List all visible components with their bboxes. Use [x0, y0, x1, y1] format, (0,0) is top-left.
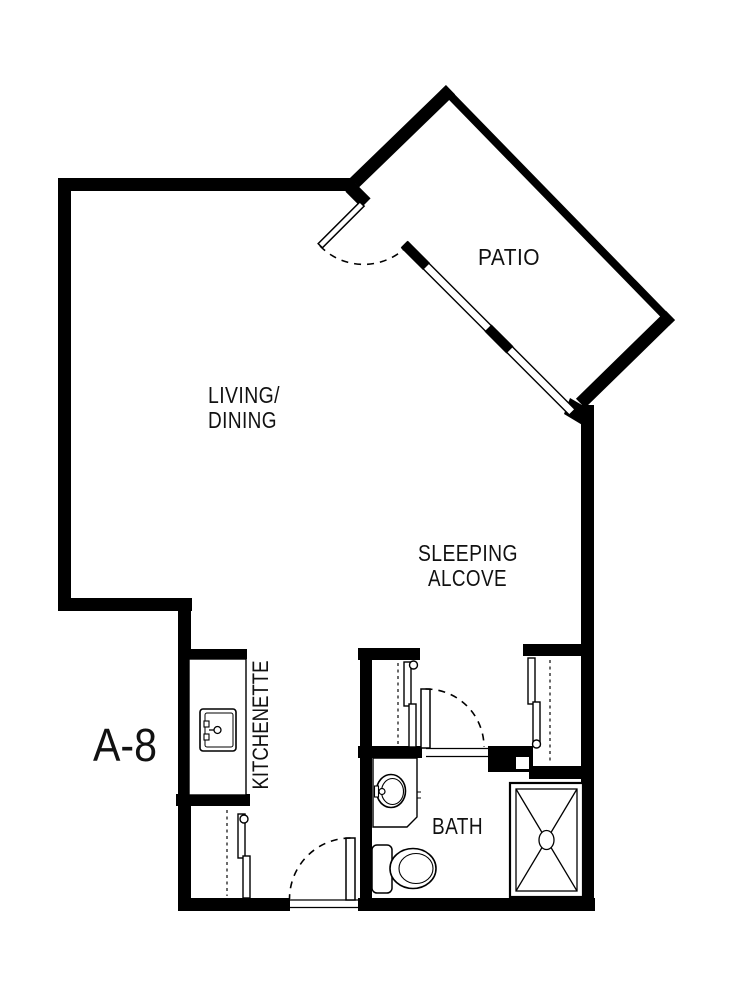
patio-door-jamb-stub	[350, 187, 366, 203]
sliding-door-knob	[533, 740, 541, 748]
left-closet-bottom-wall	[358, 746, 422, 758]
room-labels: LIVING/ DINING PATIO SLEEPING ALCOVE KIT…	[93, 244, 540, 839]
bath-door-leaf	[421, 689, 430, 748]
bath-door-pier-notch	[516, 757, 529, 769]
window-mullion-2	[484, 324, 513, 353]
bath-door	[421, 689, 488, 757]
sleeping-alcove-label-line2: ALCOVE	[428, 565, 507, 591]
top-wall	[58, 178, 355, 191]
left-wall-upper	[58, 178, 71, 611]
right-closet-bottom-wall	[529, 766, 581, 779]
kitchen-sink-icon	[200, 709, 236, 751]
sliding-door-icon	[528, 658, 535, 704]
patio-wall-upper-left	[355, 90, 451, 183]
entry-door	[290, 838, 359, 908]
hall-bath-divider-wall	[360, 648, 372, 911]
sliding-door-knob	[240, 815, 248, 823]
patio-door-leaf	[318, 202, 364, 248]
entry-door-leaf	[346, 838, 355, 900]
patio-wall-upper-right	[443, 88, 672, 323]
sliding-door-knob	[410, 661, 418, 669]
bottom-wall-left	[178, 898, 290, 911]
toilet-icon	[372, 845, 436, 893]
bottom-wall-right	[358, 898, 595, 911]
kitchenette-top-wall	[186, 649, 247, 659]
window-mullion-1	[401, 241, 430, 270]
entry-closet	[227, 810, 250, 898]
patio-door	[318, 202, 403, 265]
floor-plan-drawing: LIVING/ DINING PATIO SLEEPING ALCOVE KIT…	[0, 0, 749, 998]
unit-label: A-8	[93, 719, 157, 771]
bathroom-sink-icon	[373, 758, 421, 827]
entry-door-swing-icon	[290, 838, 351, 899]
patio-door-swing-icon	[320, 246, 403, 264]
bath-door-swing-icon	[426, 689, 485, 747]
entry-closet-top-wall	[176, 794, 250, 806]
right-closet-top-wall	[523, 644, 581, 656]
left-closet-top-wall	[358, 648, 420, 660]
step-wall	[58, 598, 192, 611]
patio-wall-lower-right	[581, 315, 671, 403]
bath-label: BATH	[432, 813, 483, 839]
sliding-door-icon	[243, 856, 250, 898]
kitchenette-label: KITCHENETTE	[248, 661, 273, 790]
sleeping-alcove-label-line1: SLEEPING	[418, 540, 518, 566]
patio-label: PATIO	[478, 244, 540, 270]
living-dining-label-line1: LIVING/	[208, 382, 280, 408]
sliding-door-icon	[404, 662, 411, 706]
sliding-door-icon	[409, 704, 416, 747]
shower-icon	[510, 783, 583, 897]
floor-plan-canvas: LIVING/ DINING PATIO SLEEPING ALCOVE KIT…	[0, 0, 749, 998]
left-closet	[398, 661, 418, 747]
kitchenette-area	[189, 659, 246, 795]
living-dining-label-line2: DINING	[208, 407, 277, 433]
